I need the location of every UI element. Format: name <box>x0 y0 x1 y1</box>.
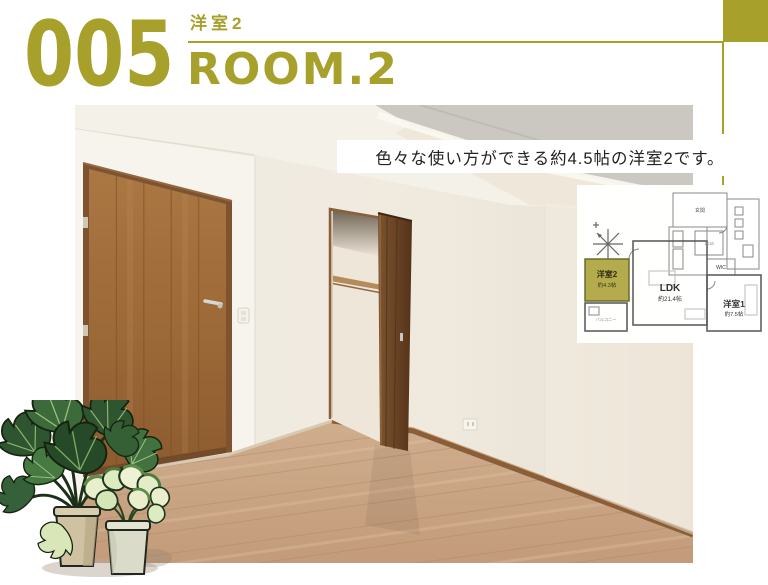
floorplan-room2-label: 洋室2 <box>597 269 618 279</box>
header-corner-square <box>723 0 768 42</box>
floorplan-wic-label: WIC <box>716 265 726 271</box>
closet-open-door <box>378 213 412 451</box>
floorplan-room2-highlight <box>585 259 629 301</box>
door-hinge-bottom <box>83 325 88 336</box>
floorplan-ldk-label: LDK <box>660 283 681 294</box>
light-switch <box>238 308 249 323</box>
photo-caption: 色々な使い方ができる約4.5帖の洋室2です。 <box>337 140 763 173</box>
room-name-japanese: 洋室2 <box>190 9 245 34</box>
floorplan-room1-size: 約7.5帖 <box>725 310 744 318</box>
power-outlet <box>463 419 477 430</box>
floorplan-bath-size-label: 1616 <box>704 241 714 246</box>
north-compass-icon <box>593 222 623 259</box>
page-number: 005 <box>24 10 174 100</box>
header-rule <box>188 41 723 43</box>
header-vertical-line <box>722 42 724 134</box>
listing-page: 005 洋室2 ROOM.2 <box>0 0 768 585</box>
floorplan-entrance-label: 玄関 <box>695 207 705 214</box>
potted-plants-illustration <box>0 400 178 582</box>
door-hinge-top <box>83 217 88 228</box>
closet <box>330 209 412 451</box>
plant-drawing <box>0 400 178 582</box>
floorplan-room1-label: 洋室1 <box>723 299 745 309</box>
floorplan-drawing: 洋室2 約4.3帖 LDK 約21.4帖 洋室1 約7.5帖 WIC 玄関 バル… <box>577 185 768 343</box>
page-title: ROOM.2 <box>187 48 399 92</box>
floorplan-room2-size: 約4.3帖 <box>598 281 617 289</box>
caption-text: 色々な使い方ができる約4.5帖の洋室2です。 <box>375 145 724 169</box>
floorplan-ldk-size: 約21.4帖 <box>658 295 682 303</box>
plant-pot-small <box>106 521 150 574</box>
floorplan-card: 洋室2 約4.3帖 LDK 約21.4帖 洋室1 約7.5帖 WIC 玄関 バル… <box>577 185 768 343</box>
floorplan-balcony-label: バルコニー <box>596 317 617 322</box>
closet-door-handle <box>400 333 403 341</box>
